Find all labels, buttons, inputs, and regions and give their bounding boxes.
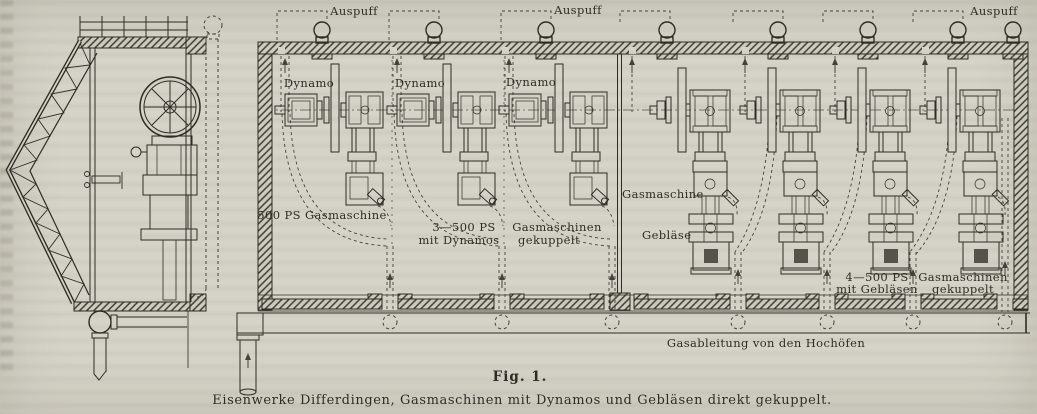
gas-engine-blower-unit bbox=[830, 68, 918, 274]
label-auspuff-2: Auspuff bbox=[553, 3, 602, 17]
exhaust-ducts bbox=[277, 11, 963, 40]
wall-pilasters bbox=[312, 54, 1023, 59]
label-gasmaschinen-gekuppelt-right-2: gekuppelt bbox=[932, 282, 994, 296]
roof-railing bbox=[80, 16, 188, 37]
engine-hall-plan bbox=[237, 11, 1030, 395]
right-hall-machines bbox=[650, 68, 1008, 274]
label-geblase: Gebläse bbox=[642, 228, 691, 242]
gas-flow-arrow bbox=[245, 353, 251, 368]
figure-number: Fig. 1. bbox=[493, 369, 548, 385]
figure-caption: Eisenwerke Differdingen, Gasmaschinen mi… bbox=[212, 393, 831, 408]
label-dynamo-2: Dynamo bbox=[395, 76, 445, 90]
gas-main-section bbox=[89, 311, 187, 380]
label-mit-geblasen: mit Gebläsen bbox=[836, 282, 918, 296]
gas-engine-blower-unit bbox=[650, 68, 738, 274]
label-500ps-gasmaschine: 500 PS Gasmaschine bbox=[257, 208, 386, 222]
label-auspuff-1: Auspuff bbox=[329, 4, 378, 18]
dividing-wall bbox=[610, 54, 630, 310]
gas-main-flanges bbox=[383, 315, 1012, 329]
label-gasmaschinen-gekuppelt-left-1: Gasmaschinen bbox=[512, 220, 602, 234]
engineering-drawing: Auspuff Auspuff Auspuff Dynamo Dynamo Dy… bbox=[0, 0, 1037, 414]
lattice-truss bbox=[8, 41, 97, 303]
label-mit-dynamos: mit Dynamos bbox=[419, 233, 500, 247]
scanned-figure-page: Auspuff Auspuff Auspuff Dynamo Dynamo Dy… bbox=[0, 0, 1037, 414]
building-cross-section bbox=[8, 16, 222, 380]
exhaust-pots bbox=[314, 22, 1021, 43]
label-auspuff-3: Auspuff bbox=[969, 4, 1018, 18]
label-dynamo-1: Dynamo bbox=[284, 76, 334, 90]
label-gasableitung: Gasableitung von den Hochöfen bbox=[667, 336, 865, 350]
flywheel-section bbox=[140, 77, 200, 137]
hall-wall-right bbox=[1014, 42, 1028, 310]
hall-wall-top bbox=[258, 42, 1028, 54]
flow-arrows bbox=[282, 58, 1008, 288]
label-dynamo-3: Dynamo bbox=[506, 75, 556, 89]
exhaust-flue-section bbox=[197, 16, 222, 297]
label-3-500ps: 3—500 PS bbox=[432, 220, 495, 234]
gas-main-pipe bbox=[237, 313, 1030, 395]
hall-wall-bottom bbox=[258, 294, 1028, 311]
hall-wall-left bbox=[258, 42, 272, 310]
foundation-blocks bbox=[262, 294, 1028, 309]
floor-slab bbox=[74, 302, 206, 311]
engine-section bbox=[131, 136, 197, 300]
gas-engine-blower-unit bbox=[920, 68, 1008, 274]
label-gasmaschinen-gekuppelt-left-2: gekuppelt bbox=[518, 233, 580, 247]
gas-engine-blower-unit bbox=[740, 68, 828, 274]
label-gasmaschine: Gasmaschine bbox=[622, 187, 704, 201]
